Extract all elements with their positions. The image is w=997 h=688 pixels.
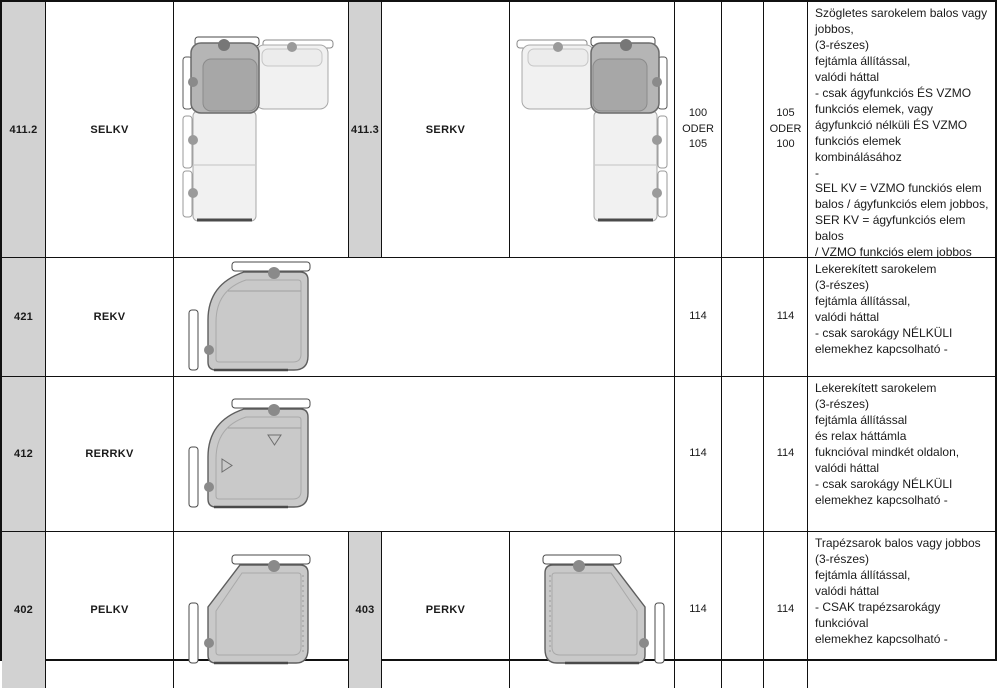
product-name-cell: SERKV — [382, 2, 510, 258]
description-cell: Trapézsarok balos vagy jobbos (3-részes)… — [808, 532, 995, 688]
table-row: 421 REKV 114 114 Lekerekített sarokelem … — [2, 258, 995, 377]
description-cell: Lekerekített sarokelem (3-részes) fejtám… — [808, 377, 995, 532]
product-name-cell: PERKV — [382, 532, 510, 688]
furniture-catalog-table: 411.2 SELKV 411.3 SERKV 100 ODER 105 105… — [0, 0, 997, 661]
trapezoid-corner-left-diagram — [182, 553, 316, 667]
description-cell: Szögletes sarokelem balos vagy jobbos, (… — [808, 2, 995, 258]
table-row: 412 RERRKV 114 114 Lekerekített sarokele… — [2, 377, 995, 532]
dimension-cell: 114 — [675, 532, 722, 688]
rounded-corner-element-relax-diagram — [182, 397, 316, 511]
product-code-cell: 411.3 — [349, 2, 382, 258]
rounded-corner-element-diagram — [182, 260, 316, 374]
diagram-cell — [174, 532, 349, 688]
dimension-cell: 114 — [764, 258, 808, 377]
product-name-cell: RERRKV — [46, 377, 174, 532]
spacer-cell — [722, 2, 764, 258]
dimension-cell: 114 — [764, 532, 808, 688]
diagram-cell — [510, 2, 675, 258]
table-row: 402 PELKV 403 PERKV 114 114 Trapézsarok … — [2, 532, 995, 688]
spacer-cell — [722, 258, 764, 377]
product-name-cell: PELKV — [46, 532, 174, 688]
dimension-cell: 100 ODER 105 — [675, 2, 722, 258]
description-cell: Lekerekített sarokelem (3-részes) fejtám… — [808, 258, 995, 377]
diagram-cell — [174, 377, 675, 532]
dimension-cell: 114 — [675, 377, 722, 532]
trapezoid-corner-right-diagram — [537, 553, 671, 667]
product-code-cell: 421 — [2, 258, 46, 377]
product-name-cell: REKV — [46, 258, 174, 377]
product-name-cell: SELKV — [46, 2, 174, 258]
table-row: 411.2 SELKV 411.3 SERKV 100 ODER 105 105… — [2, 2, 995, 258]
diagram-cell — [174, 2, 349, 258]
product-code-cell: 403 — [349, 532, 382, 688]
product-code-cell: 412 — [2, 377, 46, 532]
l-shaped-corner-sofa-right-diagram — [514, 32, 670, 227]
dimension-cell: 114 — [764, 377, 808, 532]
dimension-cell: 114 — [675, 258, 722, 377]
spacer-cell — [722, 532, 764, 688]
product-code-cell: 411.2 — [2, 2, 46, 258]
diagram-cell — [510, 532, 675, 688]
l-shaped-corner-sofa-left-diagram — [180, 32, 336, 227]
spacer-cell — [722, 377, 764, 532]
dimension-cell: 105 ODER 100 — [764, 2, 808, 258]
diagram-cell — [174, 258, 675, 377]
product-code-cell: 402 — [2, 532, 46, 688]
